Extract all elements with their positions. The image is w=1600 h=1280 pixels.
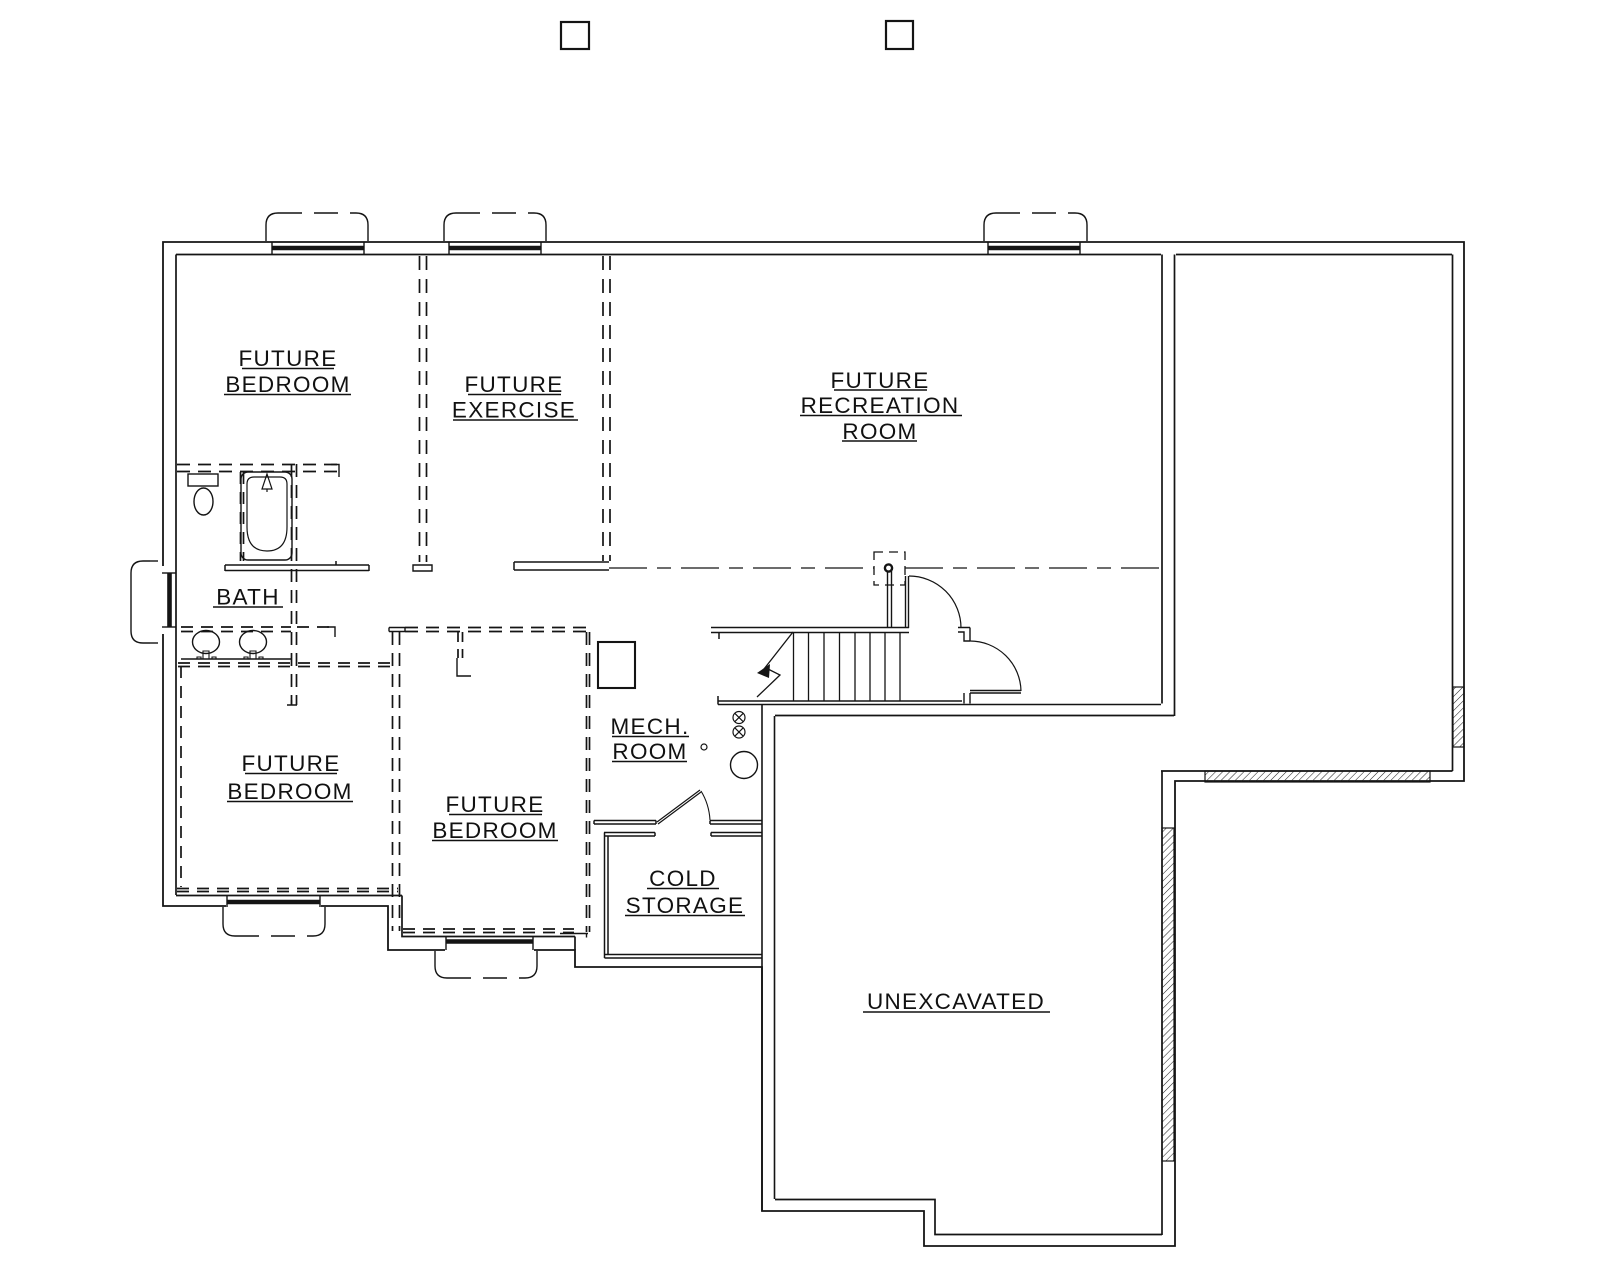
svg-text:FUTURE: FUTURE bbox=[464, 372, 563, 397]
svg-text:FUTURE: FUTURE bbox=[445, 792, 544, 817]
svg-text:MECH.: MECH. bbox=[611, 714, 690, 739]
svg-text:FUTURE: FUTURE bbox=[830, 368, 929, 393]
svg-text:BEDROOM: BEDROOM bbox=[225, 372, 350, 397]
svg-text:RECREATION: RECREATION bbox=[801, 393, 960, 418]
svg-text:ROOM: ROOM bbox=[612, 739, 687, 764]
svg-text:BEDROOM: BEDROOM bbox=[432, 818, 557, 843]
svg-text:COLD: COLD bbox=[649, 866, 717, 891]
svg-text:UNEXCAVATED: UNEXCAVATED bbox=[867, 989, 1045, 1014]
svg-text:EXERCISE: EXERCISE bbox=[452, 398, 576, 423]
svg-text:BATH: BATH bbox=[216, 585, 280, 610]
svg-text:ROOM: ROOM bbox=[842, 419, 917, 444]
svg-text:FUTURE: FUTURE bbox=[241, 751, 340, 776]
svg-text:FUTURE: FUTURE bbox=[238, 346, 337, 371]
svg-text:BEDROOM: BEDROOM bbox=[227, 779, 352, 804]
svg-text:STORAGE: STORAGE bbox=[626, 893, 745, 918]
